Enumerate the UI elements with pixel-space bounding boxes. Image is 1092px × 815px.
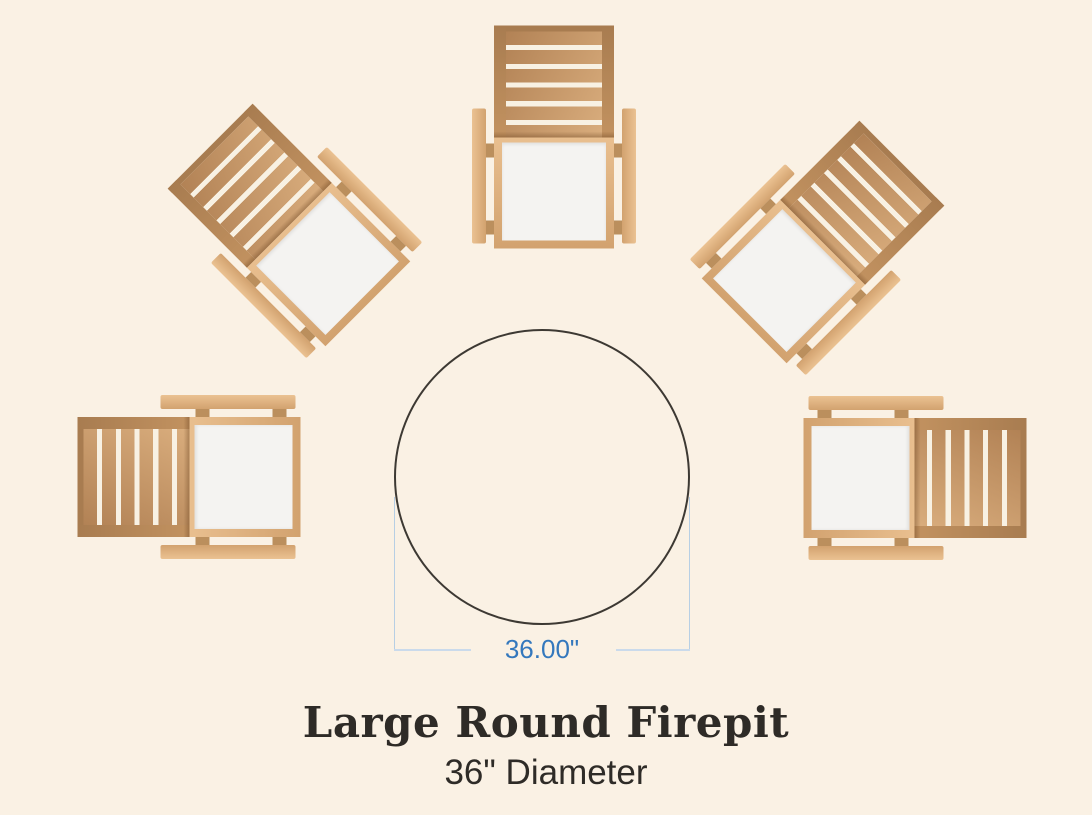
chair-back-top-rail (1021, 418, 1027, 538)
chair-armrest-left-icon (472, 109, 486, 244)
dimension-extension-line-left (394, 497, 396, 651)
chair-backrest (915, 418, 1027, 538)
chair-armrest-right-icon (161, 395, 296, 409)
chair-seat-cushion (502, 143, 606, 241)
chair-arm-connector (273, 409, 287, 417)
chair-back-stile-right (78, 417, 190, 429)
chair-back-slats (84, 429, 190, 525)
chair-back-slats (506, 32, 602, 138)
chair-arm-connector (196, 409, 210, 417)
chair-arm-connector (614, 144, 622, 158)
dimension-label: 36.00" (394, 635, 690, 663)
chair-backrest (494, 26, 614, 138)
chair-back-stile-right (602, 26, 614, 138)
firepit-seating-diagram: 36.00" Large Round Firepit 36" Diameter (0, 0, 1092, 815)
diagram-subtitle: 36" Diameter (0, 754, 1092, 792)
chair-arm-connector (273, 537, 287, 545)
chair-seat-cushion (195, 425, 293, 529)
chair-seat-cushion (812, 426, 910, 530)
chair-right (804, 396, 1027, 560)
chair-back-stile-right (915, 526, 1027, 538)
chair-arm-connector (895, 538, 909, 546)
chair-armrest-right-icon (809, 546, 944, 560)
chair-arm-connector (486, 221, 494, 235)
chair-back-stile-left (494, 26, 506, 138)
chair-arm-connector (818, 538, 832, 546)
chair-seat-frame (190, 417, 301, 537)
chair-seat-frame (494, 138, 614, 249)
chair-top (472, 26, 636, 249)
chair-backrest (78, 417, 190, 537)
diagram-title: Large Round Firepit (0, 699, 1092, 747)
chair-arm-connector (614, 221, 622, 235)
chair-left (78, 395, 301, 559)
chair-arm-connector (895, 410, 909, 418)
dimension-extension-line-right (689, 497, 691, 651)
chair-seat-frame (804, 418, 915, 538)
chair-upper-left (152, 88, 426, 362)
chair-back-stile-left (915, 418, 1027, 430)
chair-upper-right (686, 105, 960, 379)
chair-arm-connector (196, 537, 210, 545)
chair-arm-connector (486, 144, 494, 158)
chair-armrest-left-icon (809, 396, 944, 410)
chair-back-slats (915, 430, 1021, 526)
firepit-circle (394, 329, 690, 625)
chair-armrest-right-icon (622, 109, 636, 244)
chair-back-stile-left (78, 525, 190, 537)
chair-armrest-left-icon (161, 545, 296, 559)
chair-arm-connector (818, 410, 832, 418)
caption: Large Round Firepit 36" Diameter (0, 699, 1092, 792)
